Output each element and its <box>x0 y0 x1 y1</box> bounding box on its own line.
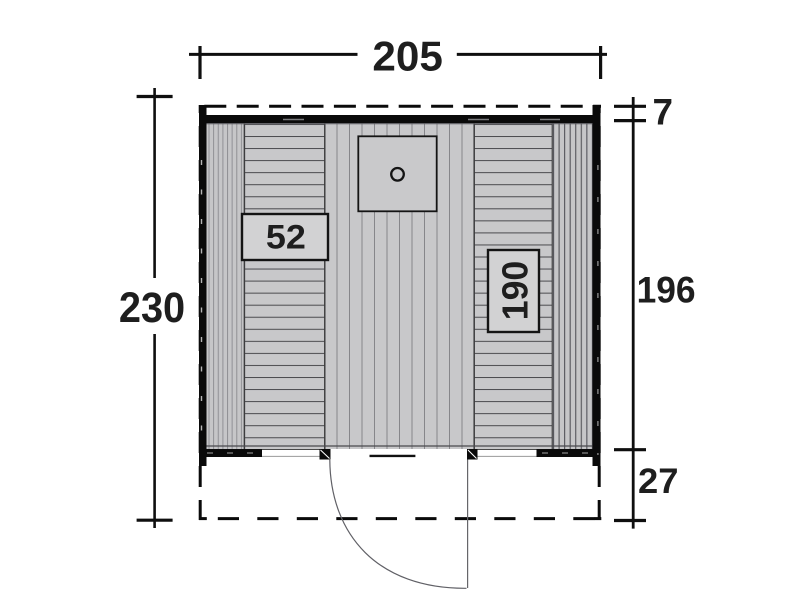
svg-text:196: 196 <box>637 270 696 311</box>
svg-text:27: 27 <box>638 462 679 501</box>
svg-text:190: 190 <box>495 261 536 321</box>
svg-text:52: 52 <box>266 218 306 256</box>
svg-text:230: 230 <box>119 284 185 332</box>
svg-text:7: 7 <box>653 91 674 132</box>
svg-text:205: 205 <box>372 33 443 80</box>
